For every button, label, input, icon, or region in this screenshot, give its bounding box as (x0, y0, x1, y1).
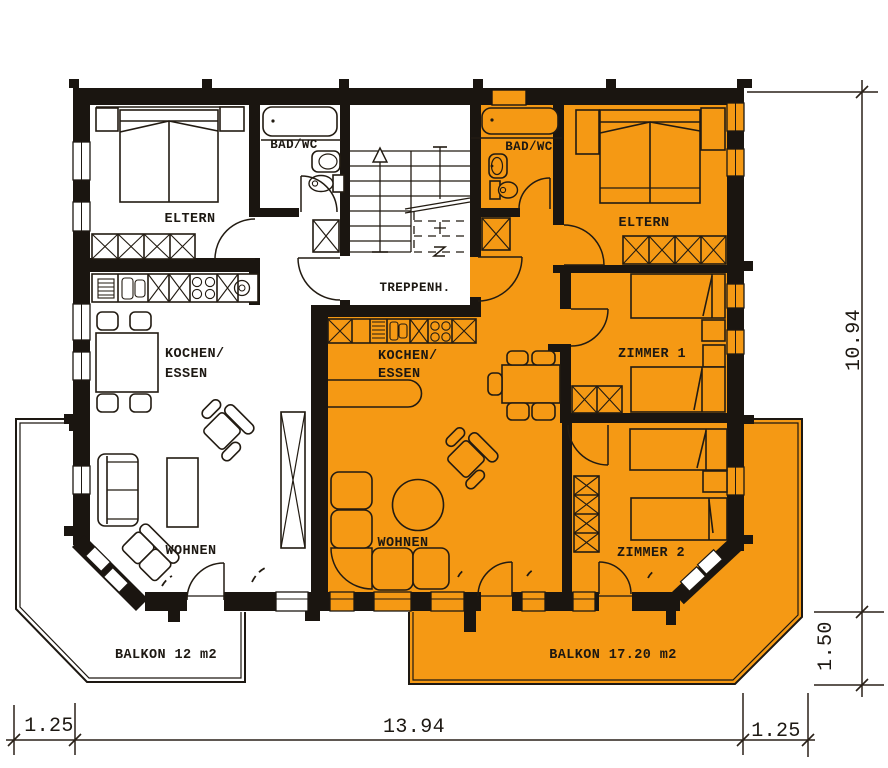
svg-text:WOHNEN: WOHNEN (377, 536, 428, 551)
svg-text:10.94: 10.94 (843, 309, 866, 371)
svg-text:ESSEN: ESSEN (378, 367, 421, 382)
svg-text:TREPPENH.: TREPPENH. (379, 281, 450, 295)
svg-text:ESSEN: ESSEN (165, 367, 208, 382)
svg-text:KOCHEN/: KOCHEN/ (165, 347, 225, 362)
svg-text:ELTERN: ELTERN (164, 212, 215, 227)
svg-text:BALKON 17.20 m2: BALKON 17.20 m2 (549, 648, 677, 663)
svg-text:ZIMMER 1: ZIMMER 1 (618, 347, 686, 362)
svg-text:BAD/WC: BAD/WC (270, 138, 318, 152)
svg-text:BAD/WC: BAD/WC (505, 140, 553, 154)
svg-text:1.25: 1.25 (24, 715, 74, 738)
svg-text:BALKON 12 m2: BALKON 12 m2 (115, 648, 217, 663)
svg-text:KOCHEN/: KOCHEN/ (378, 349, 438, 364)
svg-text:1.25: 1.25 (751, 720, 801, 743)
svg-text:1.50: 1.50 (815, 621, 838, 671)
svg-text:13.94: 13.94 (383, 716, 445, 739)
svg-text:WOHNEN: WOHNEN (165, 544, 216, 559)
svg-text:ELTERN: ELTERN (618, 216, 669, 231)
svg-text:ZIMMER 2: ZIMMER 2 (617, 546, 685, 561)
